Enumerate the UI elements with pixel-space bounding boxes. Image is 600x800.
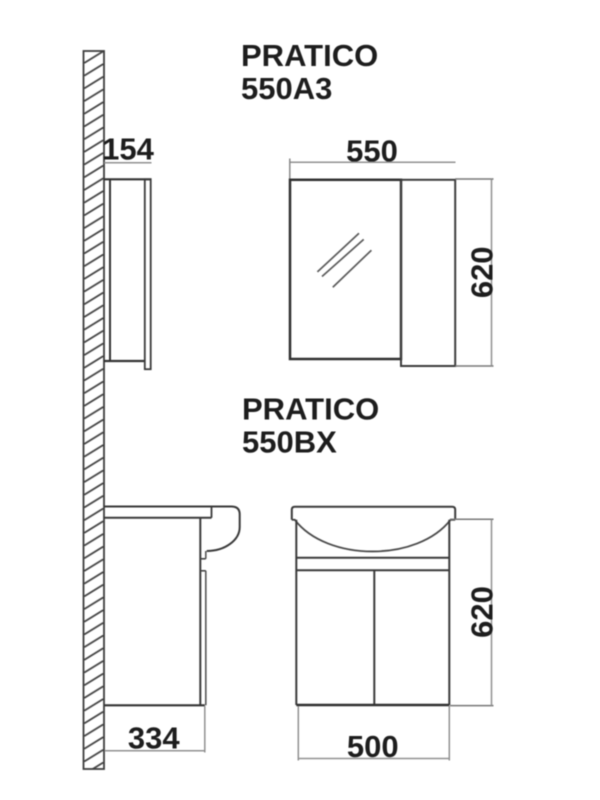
svg-text:550A3: 550A3	[241, 71, 332, 106]
svg-text:154: 154	[102, 132, 154, 167]
svg-text:334: 334	[128, 721, 180, 756]
svg-text:550BX: 550BX	[242, 425, 337, 460]
svg-text:620: 620	[464, 246, 499, 298]
svg-text:620: 620	[464, 586, 499, 638]
svg-text:500: 500	[347, 729, 399, 764]
svg-text:PRATICO: PRATICO	[242, 392, 379, 427]
svg-text:PRATICO: PRATICO	[241, 38, 378, 73]
svg-text:550: 550	[346, 134, 398, 169]
